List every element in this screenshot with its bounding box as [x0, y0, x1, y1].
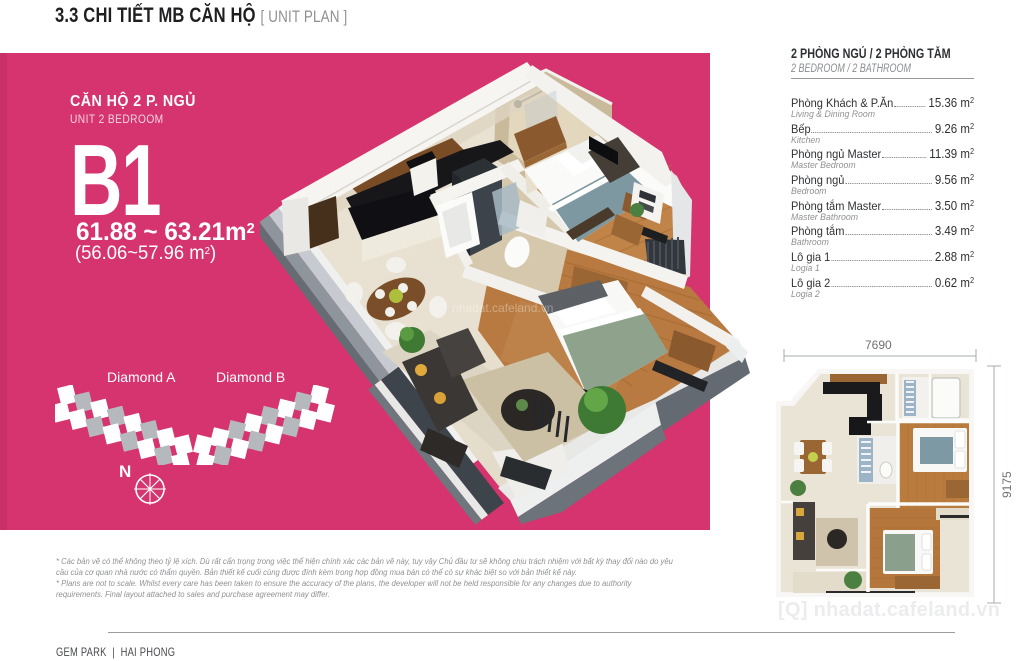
svg-text:nhadat.cafeland.vn: nhadat.cafeland.vn	[452, 301, 553, 315]
svg-text:N: N	[119, 462, 131, 481]
